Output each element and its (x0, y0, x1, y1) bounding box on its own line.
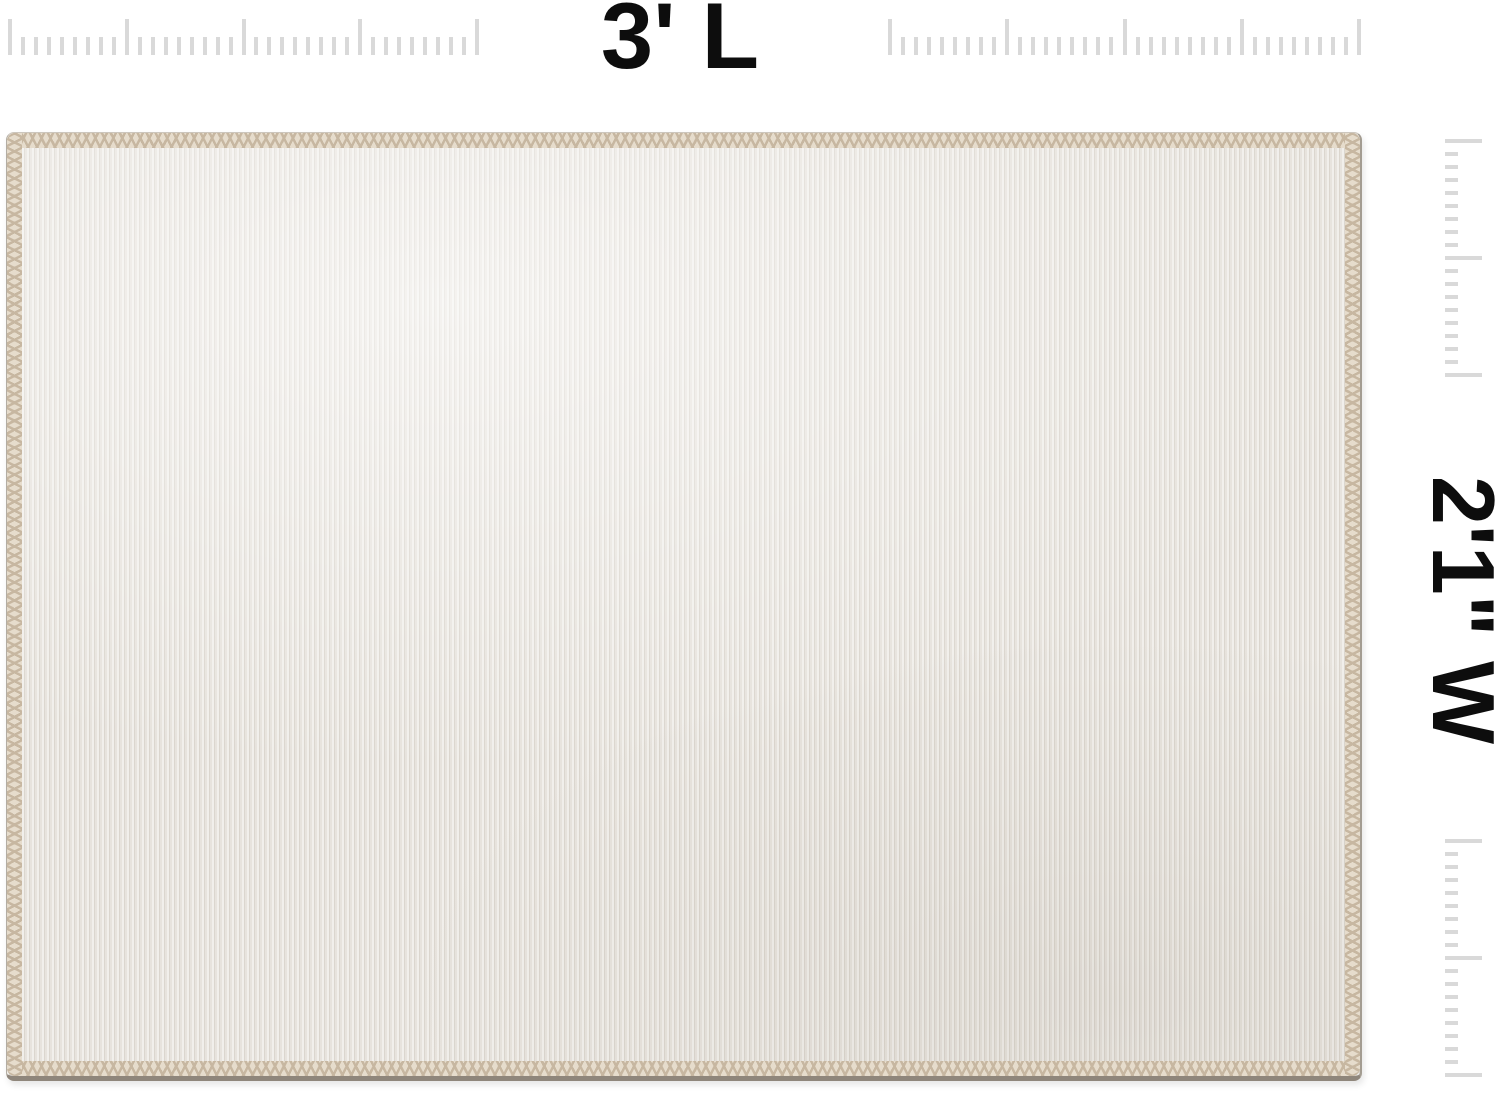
width-label: 2'1" W (1419, 476, 1500, 744)
ruler-tick-minor (436, 37, 440, 55)
ruler-tick-minor (177, 37, 181, 55)
ruler-tick-minor (34, 37, 38, 55)
ruler-tick-minor (164, 37, 168, 55)
ruler-tick-minor (1044, 37, 1048, 55)
ruler-tick-minor (384, 37, 388, 55)
ruler-tick-minor (1175, 37, 1179, 55)
ruler-tick-minor (1031, 37, 1035, 55)
ruler-tick-minor (1018, 37, 1022, 55)
ruler-tick-minor (953, 37, 957, 55)
ruler-tick-minor (267, 37, 271, 55)
ruler-tick-minor (1227, 37, 1231, 55)
ruler-tick-minor (462, 37, 466, 55)
ruler-tick-minor (1279, 37, 1283, 55)
ruler-tick-minor (1331, 37, 1335, 55)
ruler-tick-minor (1188, 37, 1192, 55)
ruler-tick-minor (229, 37, 233, 55)
ruler-tick-minor (1445, 165, 1458, 169)
ruler-tick-minor (280, 37, 284, 55)
ruler-tick-major (1240, 19, 1244, 55)
ruler-tick-major (1445, 1073, 1482, 1077)
ruler-tick-minor (1109, 37, 1113, 55)
product-dimension-image: 3' L 2'1" W (0, 0, 1500, 1094)
ruler-tick-minor (21, 37, 25, 55)
ruler-tick-minor (1445, 269, 1458, 273)
ruler-tick-minor (319, 37, 323, 55)
ruler-tick-minor (1445, 230, 1458, 234)
ruler-tick-major (8, 19, 12, 55)
ruler-tick-major (1445, 373, 1482, 377)
ruler-tick-major (1357, 19, 1361, 55)
ruler-tick-minor (1096, 37, 1100, 55)
ruler-tick-major (888, 19, 892, 55)
ruler-tick-minor (306, 37, 310, 55)
length-label: 3' L (601, 0, 759, 83)
ruler-tick-major (242, 19, 246, 55)
ruler-tick-minor (1083, 37, 1087, 55)
ruler-tick-major (125, 19, 129, 55)
ruler-tick-minor (1445, 904, 1458, 908)
ruler-tick-major (1445, 139, 1482, 143)
ruler-tick-minor (1445, 1060, 1458, 1064)
ruler-tick-minor (1445, 243, 1458, 247)
ruler-tick-major (358, 19, 362, 55)
ruler-tick-minor (1445, 982, 1458, 986)
ruler-tick-minor (1445, 995, 1458, 999)
ruler-tick-major (1445, 256, 1482, 260)
ruler-tick-minor (86, 37, 90, 55)
ruler-tick-minor (1445, 1034, 1458, 1038)
ruler-tick-minor (992, 37, 996, 55)
ruler-tick-minor (47, 37, 51, 55)
ruler-tick-minor (927, 37, 931, 55)
ruler-tick-minor (1253, 37, 1257, 55)
ruler-tick-minor (1162, 37, 1166, 55)
ruler-tick-minor (397, 37, 401, 55)
stitched-edge-bottom (7, 1061, 1360, 1076)
ruler-tick-minor (449, 37, 453, 55)
ruler-tick-major (1123, 19, 1127, 55)
ruler-tick-major (1445, 839, 1482, 843)
ruler-tick-minor (1136, 37, 1140, 55)
ruler-tick-minor (216, 37, 220, 55)
ruler-tick-minor (914, 37, 918, 55)
ruler-tick-minor (1445, 852, 1458, 856)
ruler-tick-minor (60, 37, 64, 55)
ruler-tick-minor (1266, 37, 1270, 55)
ruler-tick-minor (1445, 295, 1458, 299)
ruler-tick-minor (423, 37, 427, 55)
ruler-tick-minor (1201, 37, 1205, 55)
ruler-tick-minor (940, 37, 944, 55)
ruler-tick-minor (1070, 37, 1074, 55)
ruler-tick-minor (1445, 878, 1458, 882)
ruler-tick-minor (979, 37, 983, 55)
ruler-tick-minor (1445, 347, 1458, 351)
ruler-tick-minor (1445, 334, 1458, 338)
ruler-tick-minor (1149, 37, 1153, 55)
ruler-tick-minor (1318, 37, 1322, 55)
ruler-tick-minor (1305, 37, 1309, 55)
ruler-tick-minor (1445, 891, 1458, 895)
ruler-tick-minor (345, 37, 349, 55)
ruler-tick-minor (1445, 204, 1458, 208)
ruler-tick-minor (1445, 360, 1458, 364)
ruler-tick-minor (1292, 37, 1296, 55)
ruler-tick-minor (293, 37, 297, 55)
ruler-tick-minor (1445, 321, 1458, 325)
ruler-tick-minor (99, 37, 103, 55)
ruler-tick-major (475, 19, 479, 55)
ruler-tick-minor (901, 37, 905, 55)
ruler-tick-minor (151, 37, 155, 55)
ruler-tick-minor (1344, 37, 1348, 55)
ruler-tick-major (1445, 956, 1482, 960)
ruler-tick-minor (203, 37, 207, 55)
ruler-tick-minor (1057, 37, 1061, 55)
stitched-edge-top (7, 133, 1360, 148)
stitched-edge-left (7, 133, 22, 1076)
ruler-tick-minor (1445, 943, 1458, 947)
ruler-tick-minor (1445, 308, 1458, 312)
ruler-tick-minor (254, 37, 258, 55)
ruler-tick-minor (190, 37, 194, 55)
ruler-tick-minor (138, 37, 142, 55)
ruler-tick-minor (1445, 1008, 1458, 1012)
ruler-tick-minor (1445, 917, 1458, 921)
ruler-tick-minor (1445, 178, 1458, 182)
ruler-tick-minor (1445, 282, 1458, 286)
ruler-tick-minor (1445, 930, 1458, 934)
ruler-tick-minor (966, 37, 970, 55)
ruler-tick-minor (1445, 969, 1458, 973)
ruler-tick-minor (371, 37, 375, 55)
ruler-tick-minor (112, 37, 116, 55)
ruler-tick-minor (73, 37, 77, 55)
rug-swatch (6, 132, 1362, 1081)
ruler-tick-minor (1445, 1047, 1458, 1051)
stitched-edge-right (1345, 133, 1360, 1076)
ruler-tick-minor (1445, 217, 1458, 221)
ruler-tick-minor (1445, 152, 1458, 156)
ruler-tick-major (1005, 19, 1009, 55)
ruler-tick-minor (1445, 865, 1458, 869)
ruler-tick-minor (1214, 37, 1218, 55)
ruler-tick-minor (410, 37, 414, 55)
ruler-tick-minor (332, 37, 336, 55)
ruler-tick-minor (1445, 191, 1458, 195)
ruler-tick-minor (1445, 1021, 1458, 1025)
